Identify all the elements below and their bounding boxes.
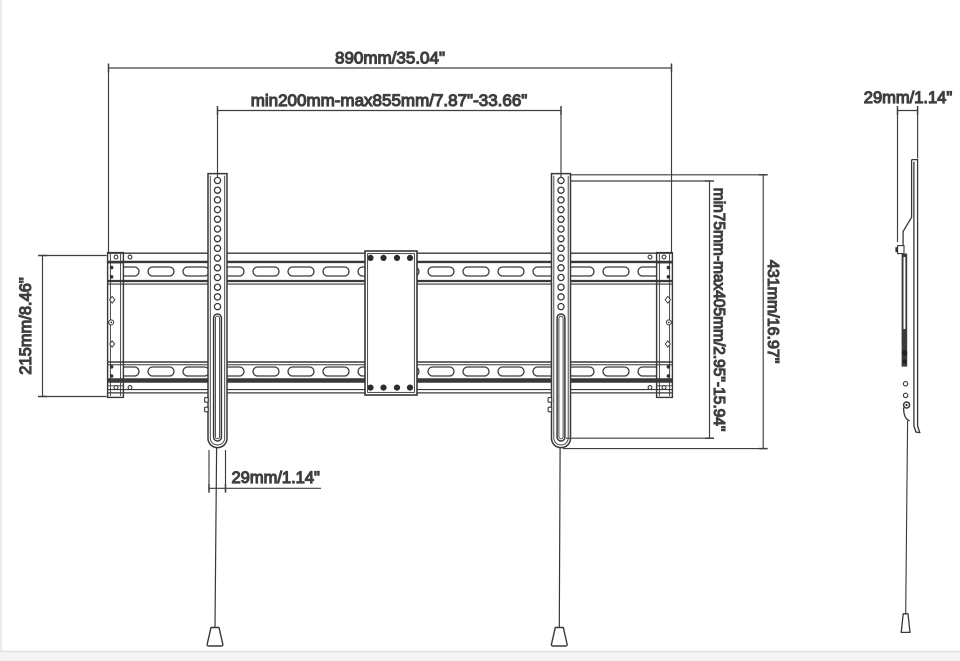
rail-slot xyxy=(323,267,349,276)
rail-slot xyxy=(568,267,594,276)
rail-slot xyxy=(288,367,314,376)
right-end-cap xyxy=(657,253,673,398)
arm-hole xyxy=(558,284,564,290)
flange-hole xyxy=(662,255,666,259)
center-plate xyxy=(365,251,417,395)
arm-hole xyxy=(558,236,564,242)
side-rail-bar-slot xyxy=(904,257,906,329)
viewport-left-edge xyxy=(0,0,2,652)
side-screw xyxy=(903,382,907,386)
diagram-canvas: 890mm/35.04" min200mm-max855mm/7.87"-33.… xyxy=(0,0,960,661)
arm-hole xyxy=(214,226,220,232)
arm-hole xyxy=(214,207,220,213)
arm-hole xyxy=(214,284,220,290)
side-screw xyxy=(903,393,907,397)
rail-slot xyxy=(568,367,594,376)
dimension-label: min200mm-max855mm/7.87"-33.66" xyxy=(251,91,528,110)
arm-hole xyxy=(558,187,564,193)
rail-slot xyxy=(428,267,454,276)
rail-slot xyxy=(148,367,174,376)
rail-slot xyxy=(183,367,209,376)
plate-rivet xyxy=(394,385,400,391)
arm-hole xyxy=(558,177,564,183)
rail-slot xyxy=(253,267,279,276)
arm-hole xyxy=(214,294,220,300)
arm-hole xyxy=(214,265,220,271)
dimension-label: 29mm/1.14" xyxy=(864,89,953,107)
rail-slot xyxy=(498,267,524,276)
arm-hole xyxy=(558,226,564,232)
dimension-label: 29mm/1.14" xyxy=(232,469,321,487)
plate-rivet xyxy=(367,255,373,261)
arm-hole xyxy=(558,294,564,300)
page-bottom-edge xyxy=(0,651,960,661)
plate-rivet xyxy=(380,255,386,261)
flange-hole xyxy=(114,255,118,259)
flange-hole xyxy=(662,386,666,390)
dimension-label: 215mm/8.46" xyxy=(17,277,35,375)
arm-hole xyxy=(214,304,220,310)
rail-slot xyxy=(183,267,209,276)
rail-slot xyxy=(603,367,629,376)
arm-hole xyxy=(214,245,220,251)
arm-hole xyxy=(214,255,220,261)
rail-slot xyxy=(148,267,174,276)
arm-hole xyxy=(214,177,220,183)
arm-hole xyxy=(558,255,564,261)
rail-slot xyxy=(463,367,489,376)
arm-hole xyxy=(214,197,220,203)
side-latch-tab xyxy=(895,247,898,252)
arm-hole xyxy=(558,304,564,310)
plate-rivet xyxy=(407,385,413,391)
plate-rivet xyxy=(407,255,413,261)
arm-outline xyxy=(208,174,227,448)
arm-hole xyxy=(558,197,564,203)
rail-slot xyxy=(498,367,524,376)
dimension-label: min75mm-max405mm/2.95"-15.94" xyxy=(710,188,727,432)
arm-hole xyxy=(558,245,564,251)
arm-lock-nub xyxy=(205,407,209,412)
dimension-label: 431mm/16.97" xyxy=(764,260,781,364)
arm-hole xyxy=(214,274,220,280)
right-vesa-arm xyxy=(548,174,570,448)
plate-rivet xyxy=(394,255,400,261)
arm-lock-nub xyxy=(548,407,552,412)
arm-hole xyxy=(214,236,220,242)
rail-slot xyxy=(428,367,454,376)
arm-hole xyxy=(558,207,564,213)
flange-hole xyxy=(114,386,118,390)
side-cord-cone xyxy=(901,614,910,633)
diagram-page: 890mm/35.04" min200mm-max855mm/7.87"-33.… xyxy=(0,0,960,661)
left-vesa-arm xyxy=(205,174,227,448)
arm-outline xyxy=(552,174,571,448)
rail-slot xyxy=(323,367,349,376)
arm-hole xyxy=(214,187,220,193)
arm-lock-nub xyxy=(205,398,209,403)
flange-hole xyxy=(128,386,132,390)
rail-slot xyxy=(463,267,489,276)
flange-hole xyxy=(648,386,652,390)
side-latch xyxy=(898,246,904,254)
flange-hole xyxy=(648,255,652,259)
arm-hole xyxy=(558,274,564,280)
left-end-cap xyxy=(108,253,124,398)
arm-lock-nub xyxy=(548,398,552,403)
rail-slot xyxy=(253,367,279,376)
rail-slot xyxy=(288,267,314,276)
flange-hole xyxy=(128,255,132,259)
dimension-label: 890mm/35.04" xyxy=(335,49,445,68)
plate-rivet xyxy=(367,385,373,391)
arm-hole xyxy=(558,265,564,271)
arm-hole xyxy=(558,216,564,222)
rail-slot xyxy=(603,267,629,276)
arm-hole xyxy=(214,216,220,222)
plate-rivet xyxy=(380,385,386,391)
